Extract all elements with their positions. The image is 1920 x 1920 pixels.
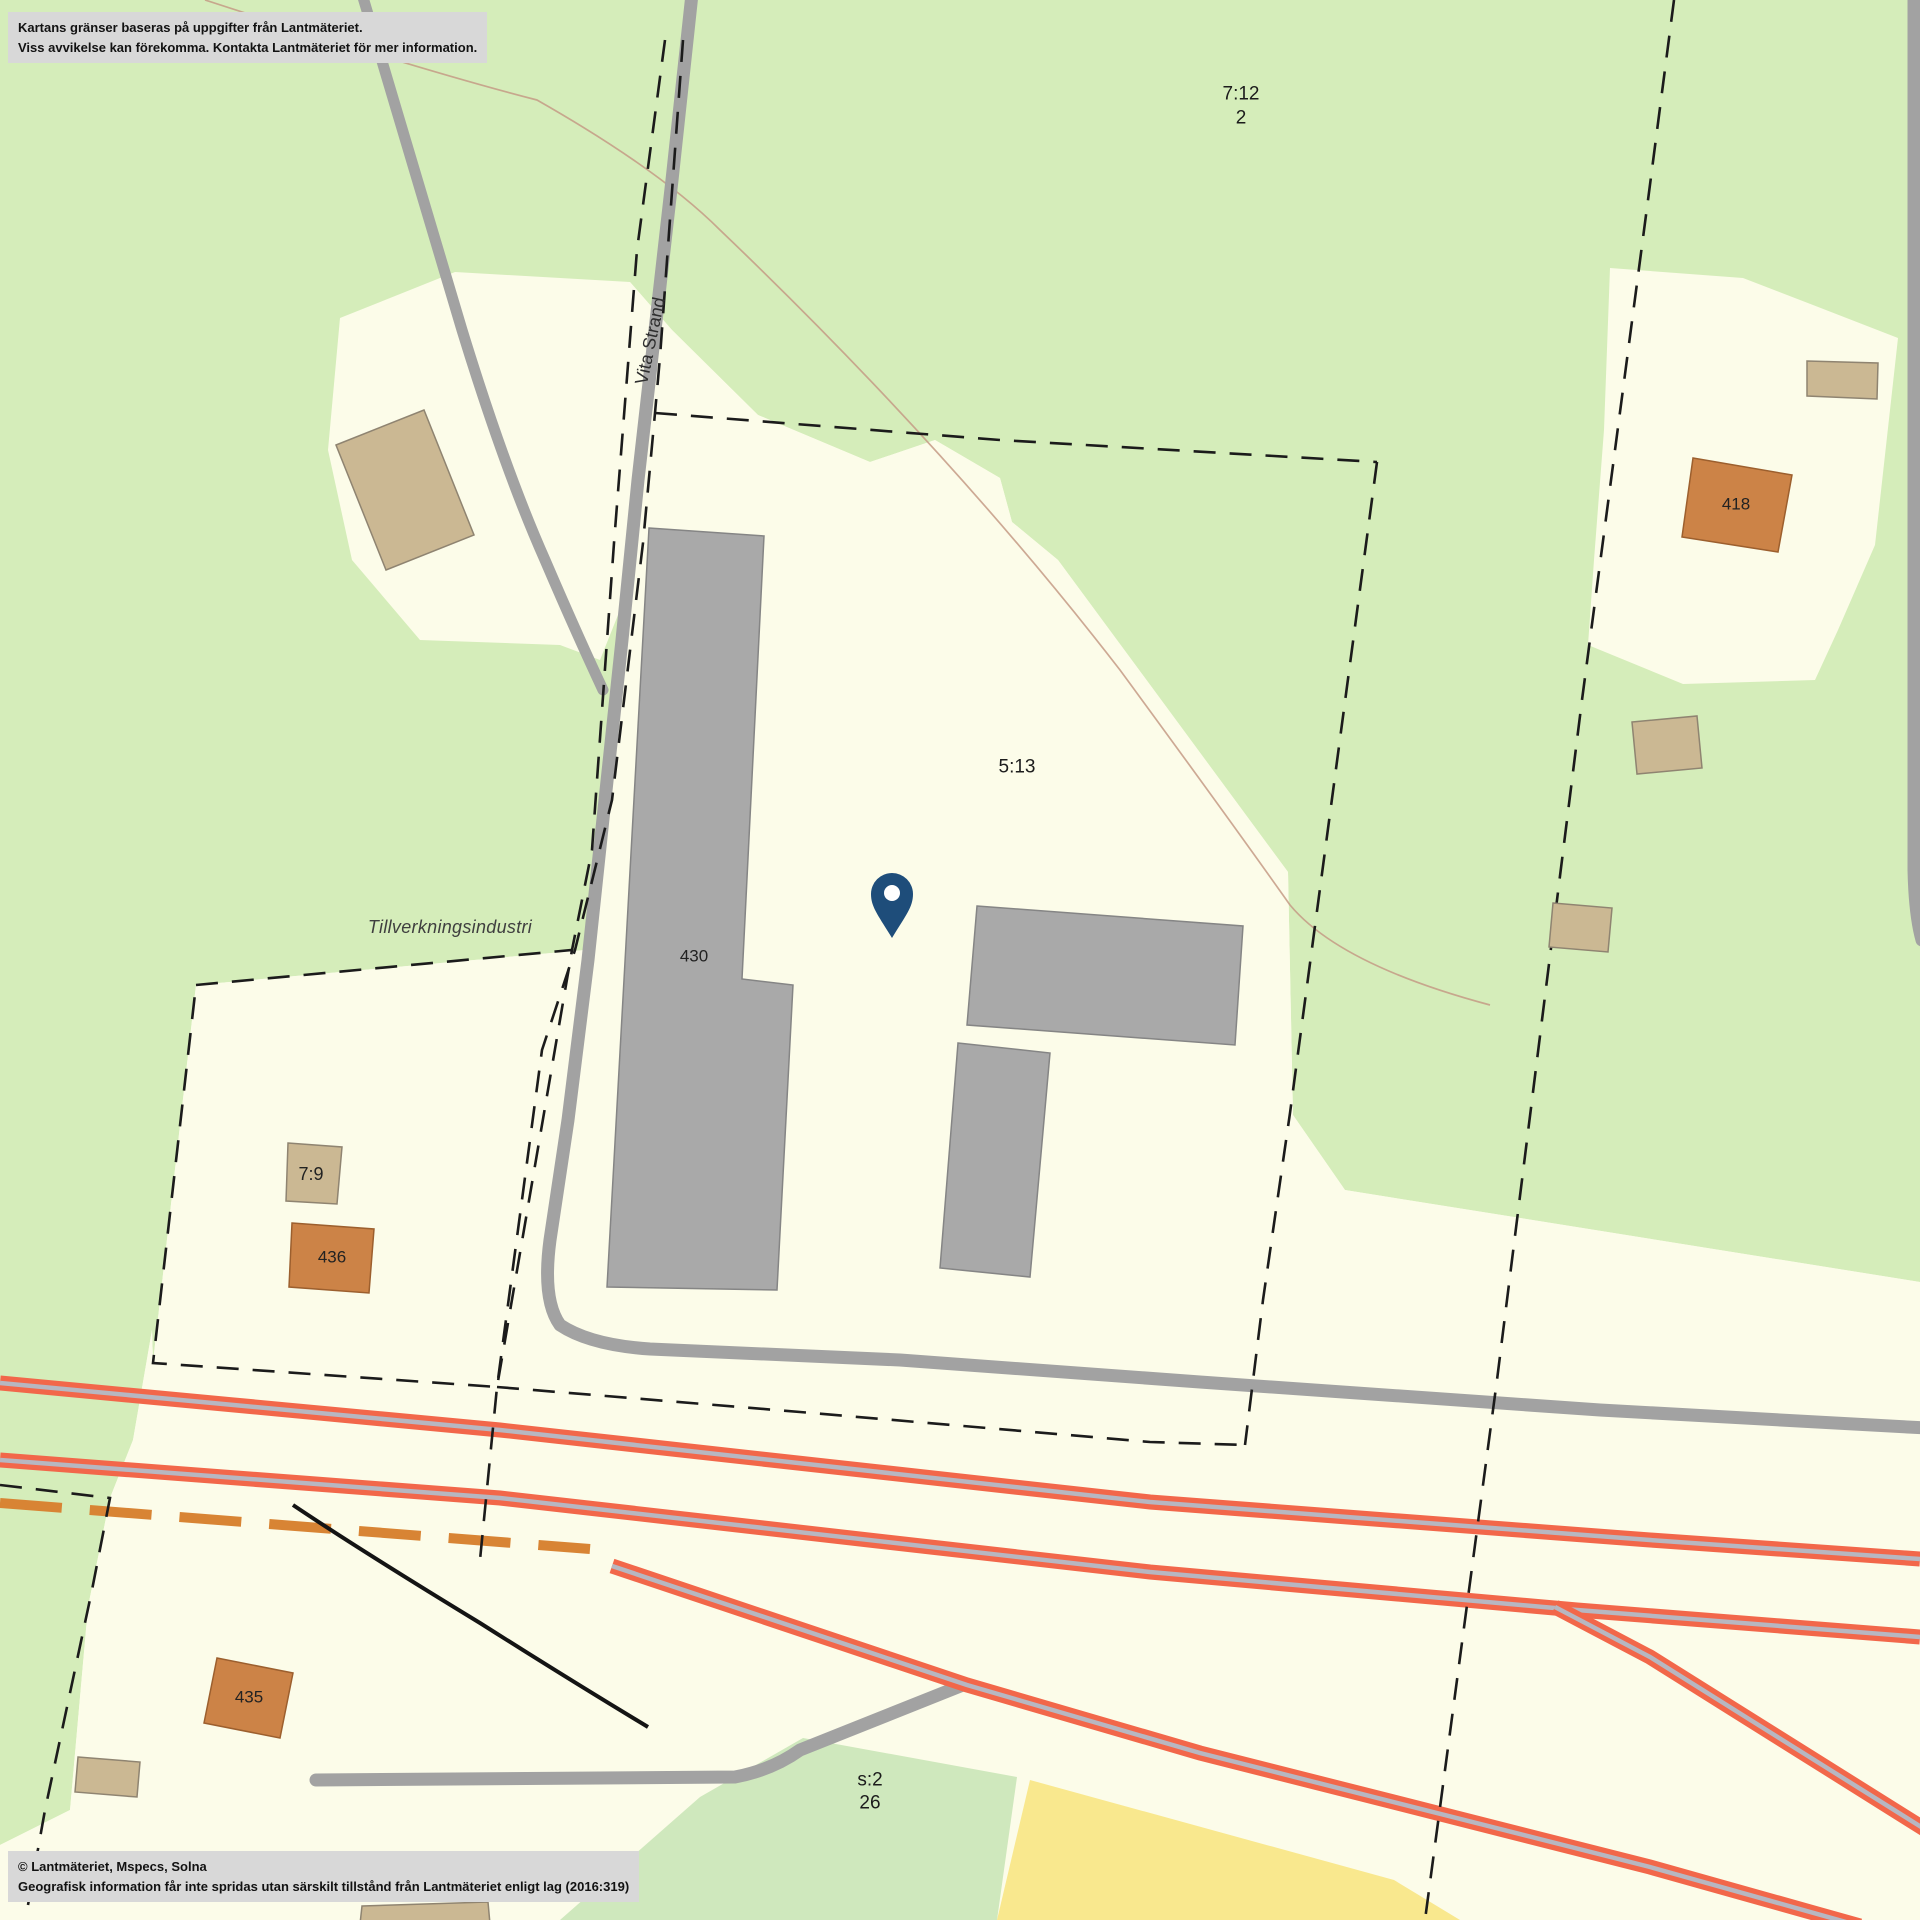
map-copyright: © Lantmäteriet, Mspecs, Solna Geografisk… xyxy=(8,1851,639,1902)
disclaimer-line-2: Viss avvikelse kan förekomma. Kontakta L… xyxy=(18,38,477,58)
building-shed-bottom xyxy=(360,1902,490,1920)
road-east-edge xyxy=(1914,0,1920,940)
building-industrial-tall xyxy=(940,1043,1050,1277)
building-436-house xyxy=(289,1223,374,1293)
building-industrial-wide xyxy=(967,906,1243,1045)
map-disclaimer: Kartans gränser baseras på uppgifter frå… xyxy=(8,12,487,63)
building-7-9-shed xyxy=(286,1143,342,1204)
disclaimer-line-1: Kartans gränser baseras på uppgifter frå… xyxy=(18,18,477,38)
map-layers xyxy=(0,0,1920,1920)
copyright-line-2: Geografisk information får inte spridas … xyxy=(18,1877,629,1897)
building-435-house xyxy=(204,1658,293,1738)
building-shed-northeast xyxy=(1807,361,1878,399)
cadastral-map[interactable]: 7:12 2 5:13 Vita Strand Tillverkningsind… xyxy=(0,0,1920,1920)
building-shed-southwest xyxy=(75,1757,140,1797)
building-shed-east-2 xyxy=(1549,903,1612,952)
building-418-house xyxy=(1682,458,1792,552)
copyright-line-1: © Lantmäteriet, Mspecs, Solna xyxy=(18,1857,629,1877)
building-shed-east-1 xyxy=(1632,716,1702,774)
